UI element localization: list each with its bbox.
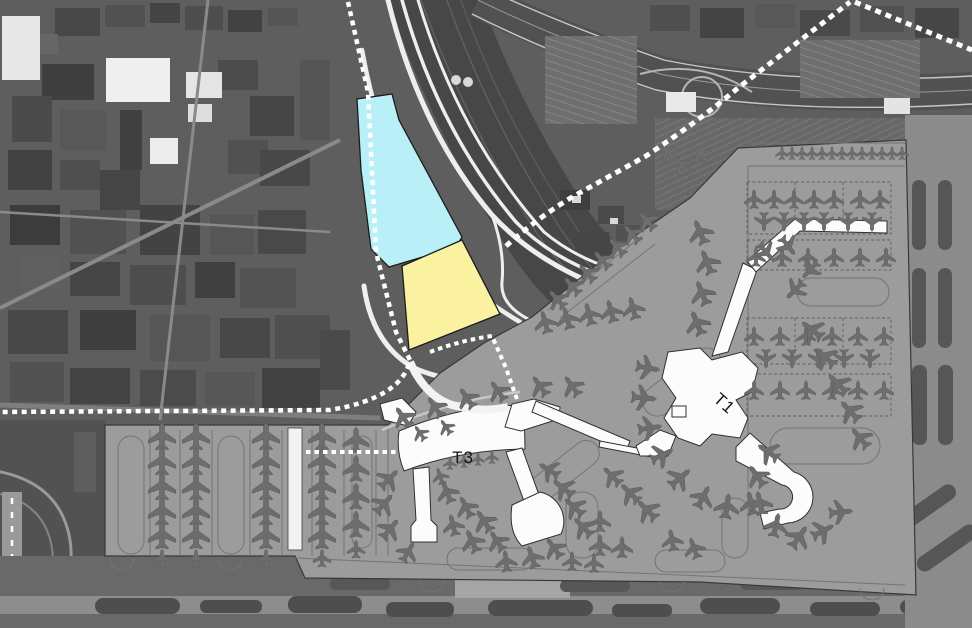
terminal-3-label: T3 (452, 448, 474, 467)
deicing-strip (288, 428, 302, 550)
map-canvas: T3 T1 (0, 0, 972, 628)
airport-plan-map: T3 T1 (0, 0, 972, 628)
